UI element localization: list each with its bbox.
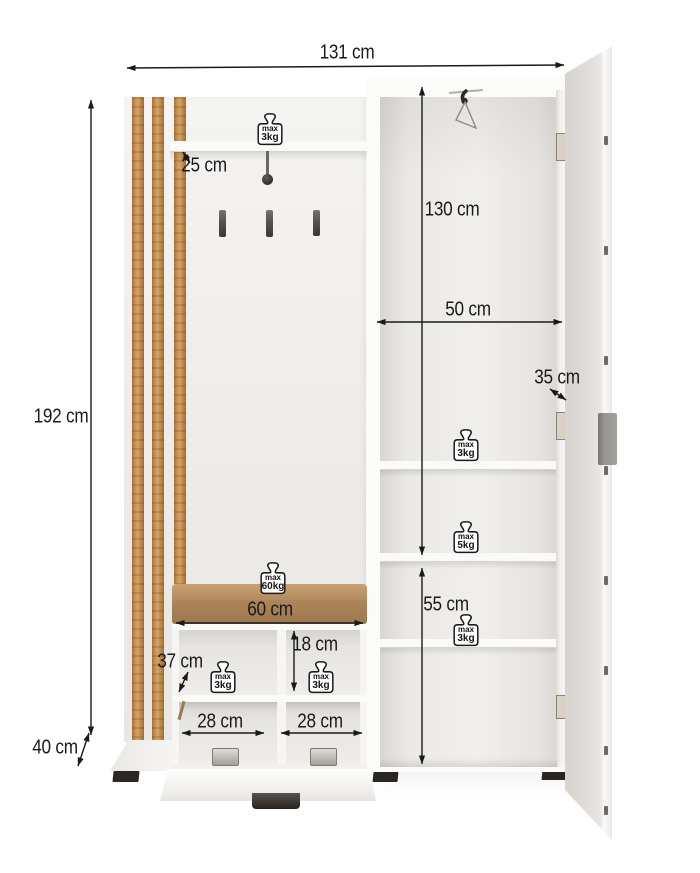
load-badge-bench: max 60kg [256,558,290,596]
load-badge-text: max 3kg [206,673,240,691]
load-badge-text: max 5kg [449,533,483,551]
load-badge-wardrobe-middle: max 5kg [449,517,483,555]
wardrobe-shelf-lower-shadow [380,648,557,655]
dim-label-bench-depth: 37 cm [157,651,203,674]
wardrobe-foot-left [372,772,398,782]
bench-board [172,624,367,631]
load-badge-wardrobe-lower: max 3kg [449,610,483,648]
coat-hook-1 [219,210,226,237]
wardrobe-shelf-upper-shadow [380,470,557,477]
shoe-right-wall [360,702,367,765]
wood-slat-2 [152,97,164,741]
load-badge-bench-right: max 3kg [304,657,338,695]
dim-label-total-width: 131 cm [320,42,375,65]
load-badge-text: max 3kg [253,125,287,143]
coat-hook-2 [266,210,273,237]
load-badge-wardrobe-upper: max 3kg [449,425,483,463]
load-badge-bench-left: max 3kg [206,657,240,695]
door-hinge-mark-7 [604,746,608,755]
dim-label-bench-niche-height: 18 cm [292,634,338,657]
wardrobe-shelf-middle-shadow [380,562,557,569]
load-badge-top-shelf: max 3kg [253,109,287,147]
pull-hook-rod [266,151,269,176]
wood-slat-1 [132,97,144,741]
bench-upper-divider [277,630,286,695]
shoe-left-wall [172,702,179,765]
dim-label-shoe-left-width: 28 cm [197,711,243,734]
dim-label-wardrobe-width: 50 cm [445,299,491,322]
left-plinth [110,740,178,771]
load-badge-text: max 3kg [449,626,483,644]
door-hinge-mark-2 [604,246,608,255]
load-badge-text: max 60kg [256,574,290,592]
flap-handle [252,793,300,809]
coat-hook-3 [313,210,320,236]
dim-label-shoe-right-width: 28 cm [297,711,343,734]
diagram-canvas: 131 cm 192 cm 130 cm 50 cm 35 cm 55 cm 2… [0,0,700,873]
flap-hinge-left [212,748,239,766]
dim-line-total-width [127,65,564,68]
door-hinge-mark-3 [604,356,608,365]
dim-label-bench-width: 60 cm [247,599,293,622]
door-hinge-mark-6 [604,666,608,675]
bench-mid-shelf-shadow [179,702,360,710]
load-badge-text: max 3kg [304,673,338,691]
dim-label-wardrobe-height: 130 cm [425,199,480,222]
load-badge-text: max 3kg [449,441,483,459]
shoe-divider [277,702,286,765]
clothes-hanger-icon [446,86,488,134]
flap-hinge-right [310,748,337,766]
dim-label-total-height: 192 cm [34,406,89,429]
pull-hook-knob [262,174,273,185]
door-hinge-mark-1 [604,136,608,145]
dim-label-wardrobe-depth: 35 cm [534,367,580,390]
door-handle [598,413,617,465]
door-hinge-mark-8 [604,806,608,815]
dim-label-shelf-depth: 25 cm [181,155,227,178]
bench-right-wall [360,630,367,695]
wardrobe-floor-shadow [380,758,557,767]
left-foot [112,771,139,782]
dim-line-base-depth [78,733,89,766]
door-hinge-mark-4 [604,466,608,475]
dim-label-base-depth: 40 cm [32,737,78,760]
door-hinge-mark-5 [604,576,608,585]
